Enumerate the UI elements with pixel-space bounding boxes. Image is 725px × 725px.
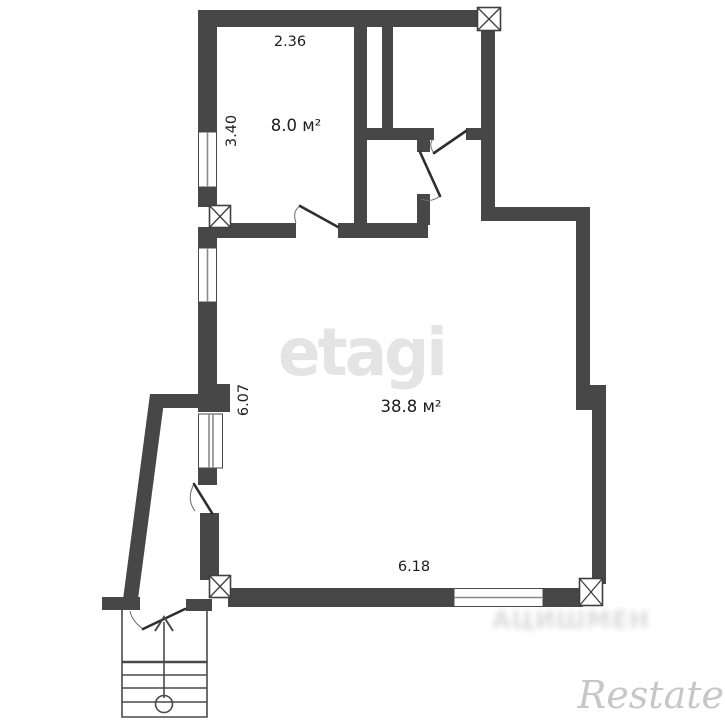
wall-top	[198, 10, 480, 27]
wall-right-upper-v	[481, 28, 495, 209]
stair-start-circle	[156, 696, 173, 713]
wall-left-c	[198, 302, 217, 386]
door-left-wall	[190, 484, 212, 513]
wall-right-v1	[576, 221, 590, 389]
window-left-2	[199, 248, 217, 302]
door-closet	[420, 152, 440, 200]
floor-plan-page: etagi АЦИШМЕН Restate	[0, 0, 725, 725]
stairs	[122, 608, 207, 717]
wall-closet-stub-b	[417, 194, 430, 225]
column-left-bottom	[210, 576, 231, 598]
area-room1: 8.0 м²	[271, 116, 322, 135]
wall-divider-2	[382, 25, 393, 129]
wall-right-v2	[592, 408, 606, 584]
wall-left-upper	[198, 10, 217, 133]
wall-right-jog	[576, 385, 606, 410]
column-bottom-right	[580, 579, 603, 606]
wall-room1-bottom-right	[338, 223, 428, 238]
wall-divider-1	[354, 25, 367, 225]
column-top-right	[478, 8, 501, 31]
floor-plan-svg: 2.36 3.40 8.0 м² 6.07 38.8 м² 6.18	[0, 0, 725, 725]
window-left-3	[199, 414, 223, 468]
labels: 2.36 3.40 8.0 м² 6.07 38.8 м² 6.18	[224, 34, 442, 575]
wall-closet-stub-a	[417, 138, 430, 152]
wall-entry-right	[186, 599, 212, 611]
wall-bottom-right	[543, 588, 583, 607]
wall-left-lower	[200, 513, 219, 580]
dim-room1-width: 2.36	[274, 34, 306, 50]
columns	[210, 8, 603, 606]
wall-bottom-left	[228, 588, 454, 607]
window-bottom	[454, 589, 543, 607]
dim-room1-depth: 3.40	[224, 115, 240, 147]
wall-slanted	[122, 394, 165, 607]
doors	[130, 131, 466, 629]
window-left-1	[199, 132, 217, 187]
dim-room2-width: 6.18	[398, 559, 430, 575]
wall-entry-left	[102, 597, 140, 610]
wall-right-h	[481, 207, 590, 221]
walls	[102, 10, 606, 611]
door-top-room	[431, 131, 466, 153]
area-room2: 38.8 м²	[380, 397, 441, 416]
wall-left-a	[198, 186, 217, 207]
door-room1	[295, 206, 338, 227]
wall-left-junction	[198, 384, 230, 412]
wall-left-stub	[198, 468, 217, 485]
dim-room2-depth: 6.07	[236, 384, 252, 416]
column-left-mid	[210, 206, 231, 228]
